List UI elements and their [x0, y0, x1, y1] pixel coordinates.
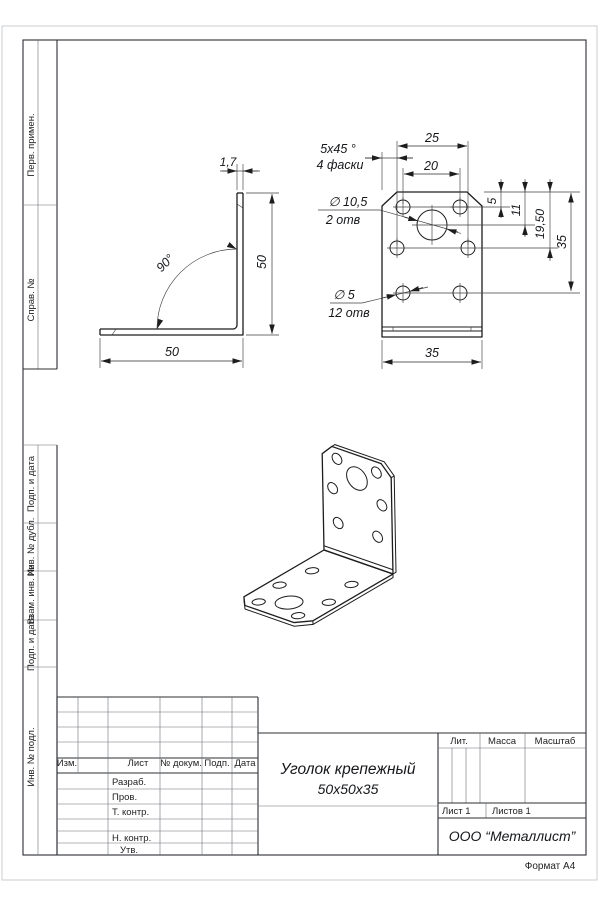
dim-35-right-label: 35	[555, 235, 569, 249]
rev-header-izm: Изм.	[57, 758, 77, 769]
part-name-line2: 50х50х35	[318, 781, 379, 797]
chamfer-note-line1: 5х45 °	[320, 142, 356, 156]
staff-nkontr: Н. контр.	[112, 833, 151, 844]
format-note: Формат А4	[525, 861, 576, 872]
rev-header-list: Лист	[128, 758, 149, 769]
dim-19-50-label: 19,50	[533, 209, 547, 239]
dim-20-label: 20	[423, 159, 438, 173]
big-hole-note-line1: ∅ 10,5	[329, 195, 368, 209]
dim-11-label: 11	[509, 204, 523, 216]
sidebar-label-perv-primen: Перв. примен.	[26, 113, 37, 176]
sidebar-label-inv-podl: Инв. № подл.	[26, 727, 37, 786]
dim-thickness-label: 1,7	[220, 155, 238, 169]
dim-height-50-label: 50	[255, 255, 269, 269]
dim-width-50-label: 50	[165, 345, 179, 359]
engineering-drawing-sheet: Перв. примен. Справ. № Подп. и дата Инв.…	[0, 0, 600, 900]
big-hole-note-line2: 2 отв	[325, 213, 361, 227]
dim-25-label: 25	[424, 131, 439, 145]
mass-label: Масса	[488, 736, 517, 747]
sidebar-label-sprav-no: Справ. №	[26, 278, 37, 321]
paper-edge	[2, 26, 597, 880]
sheet-label: Лист 1	[442, 806, 471, 817]
small-hole-note-line1: ∅ 5	[333, 288, 354, 302]
staff-prov: Пров.	[112, 792, 137, 803]
staff-razrab: Разраб.	[112, 777, 146, 788]
drawing-canvas: Перв. примен. Справ. № Подп. и дата Инв.…	[0, 0, 600, 900]
scale-label: Масштаб	[535, 736, 576, 747]
company-name: ООО “Металлист”	[449, 828, 577, 844]
dim-5-label: 5	[485, 197, 499, 204]
lit-label: Лит.	[450, 736, 467, 747]
rev-header-data: Дата	[234, 758, 256, 769]
staff-tkontr: Т. контр.	[112, 807, 149, 818]
small-hole-note-line2: 12 отв	[328, 306, 370, 320]
chamfer-note-line2: 4 фаски	[317, 158, 364, 172]
sidebar-label-podp-data-2: Подп. и дата	[26, 614, 37, 671]
rev-header-dokum: № докум.	[160, 758, 202, 769]
sheets-label: Листов 1	[492, 806, 531, 817]
sheet-border	[2, 26, 597, 880]
sidebar-label-podp-data-1: Подп. и дата	[26, 455, 37, 512]
dim-35-bottom-label: 35	[425, 346, 439, 360]
staff-utv: Утв.	[120, 845, 138, 856]
part-name-line1: Уголок крепежный	[279, 761, 415, 778]
rev-header-podp: Подп.	[204, 758, 229, 769]
